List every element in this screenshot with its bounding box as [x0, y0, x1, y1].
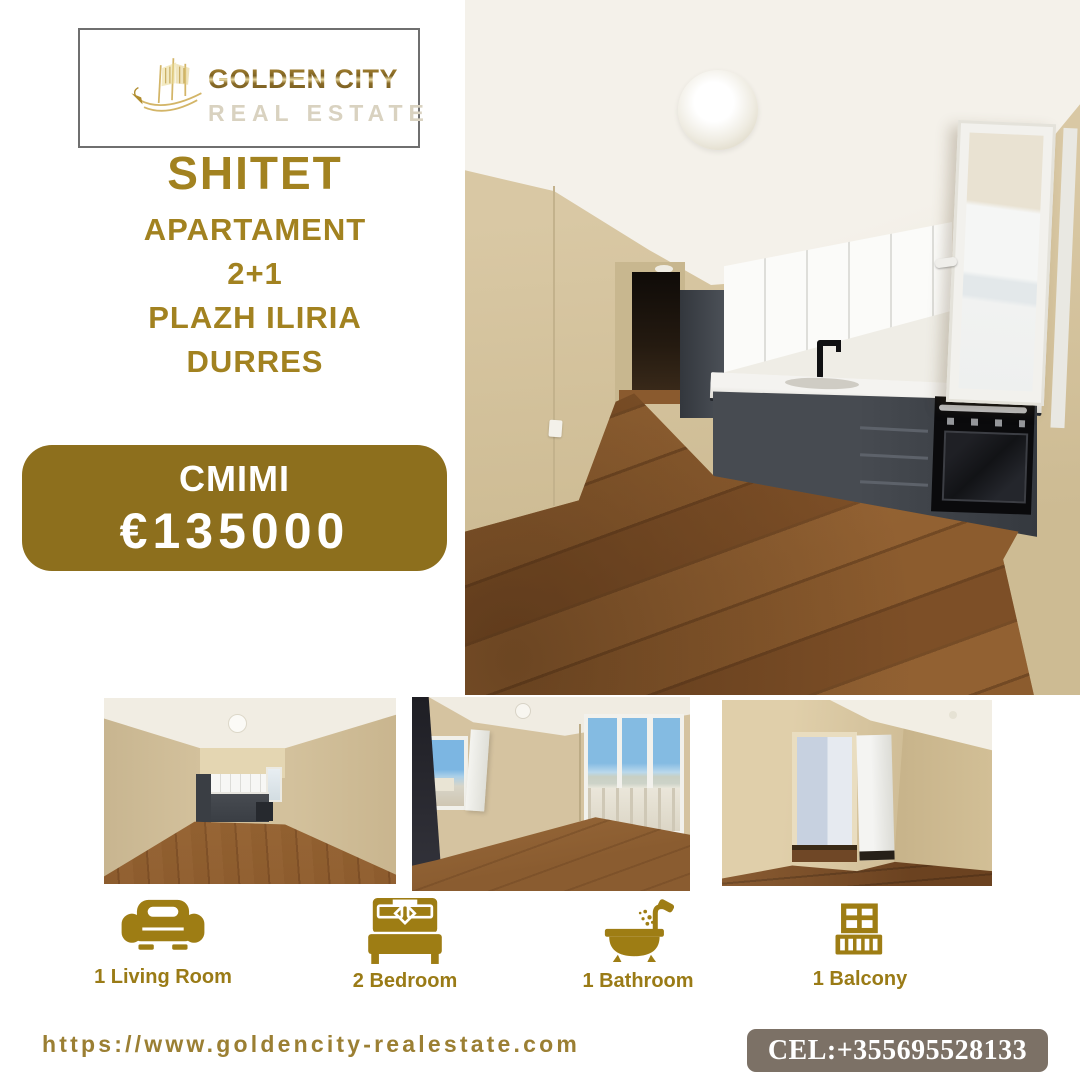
faucet-spout	[836, 340, 841, 352]
wall-corner	[553, 186, 555, 506]
price-value: €135000	[22, 502, 447, 560]
doorway-floor	[792, 850, 857, 862]
feature-label: 1 Bathroom	[553, 970, 723, 993]
ceiling-light	[515, 703, 531, 719]
door-shadow	[860, 851, 895, 861]
property-area: PLAZH ILIRIA	[30, 296, 480, 340]
feature-balcony: 1 Balcony	[775, 898, 945, 991]
ceiling-light	[228, 714, 247, 733]
open-window-sash	[465, 729, 490, 812]
open-window-sash	[946, 120, 1056, 406]
buildings-in-view	[434, 778, 454, 791]
oven-door-glass	[942, 431, 1028, 504]
golden-ship-icon	[130, 46, 214, 132]
kitchen-upper-cabinets	[211, 774, 266, 792]
logo-text: GOLDEN CITY REAL ESTATE	[208, 64, 414, 127]
price-box: CMIMI €135000	[22, 445, 447, 571]
thumb-photo-balcony-room	[412, 697, 690, 891]
thumb-photo-living-room	[104, 698, 396, 884]
real-estate-flyer: GOLDEN CITY REAL ESTATE SHITET APARTAMEN…	[0, 0, 1080, 1080]
thumb-photo-hallway	[722, 700, 992, 886]
window-fixed-frame	[1050, 128, 1077, 428]
listing-status: SHITET	[30, 146, 480, 200]
balcony-glass-doors	[584, 714, 684, 834]
ceiling-light	[949, 711, 957, 719]
feature-label: 1 Balcony	[775, 968, 945, 991]
doorway	[792, 732, 857, 862]
price-label: CMIMI	[22, 458, 447, 500]
logo-company-name: GOLDEN CITY	[208, 64, 414, 95]
open-white-door	[857, 735, 895, 860]
feature-living-room: 1 Living Room	[78, 898, 248, 989]
room-through-doorway	[797, 737, 852, 857]
wall-corner	[579, 724, 581, 821]
feature-label: 2 Bedroom	[320, 970, 490, 993]
property-layout: 2+1	[30, 252, 480, 296]
headline-block: SHITET APARTAMENT 2+1 PLAZH ILIRIA DURRE…	[30, 146, 480, 384]
bed-icon	[359, 898, 451, 964]
website-link[interactable]: https://www.goldencity-realestate.com	[42, 1031, 580, 1058]
ceiling-light	[678, 70, 758, 150]
window-glass	[958, 133, 1043, 392]
property-type: APARTAMENT	[30, 208, 480, 252]
hallway-dark-door	[632, 272, 680, 394]
logo-box: GOLDEN CITY REAL ESTATE	[78, 28, 420, 148]
light-switch	[548, 420, 562, 438]
feature-bedroom: 2 Bedroom	[320, 898, 490, 993]
feature-bathroom: 1 Bathroom	[553, 898, 723, 993]
faucet	[817, 342, 823, 378]
bathtub-icon	[602, 898, 674, 964]
sofa-icon	[117, 898, 209, 960]
dark-appliance	[256, 802, 274, 821]
feature-label: 1 Living Room	[78, 966, 248, 989]
balcony-icon	[825, 898, 895, 962]
property-city: DURRES	[30, 340, 480, 384]
tall-cabinet	[196, 774, 211, 822]
main-photo-kitchen	[465, 0, 1080, 695]
phone-button[interactable]: CEL:+355695528133	[747, 1029, 1048, 1072]
logo-tagline: REAL ESTATE	[208, 100, 414, 127]
